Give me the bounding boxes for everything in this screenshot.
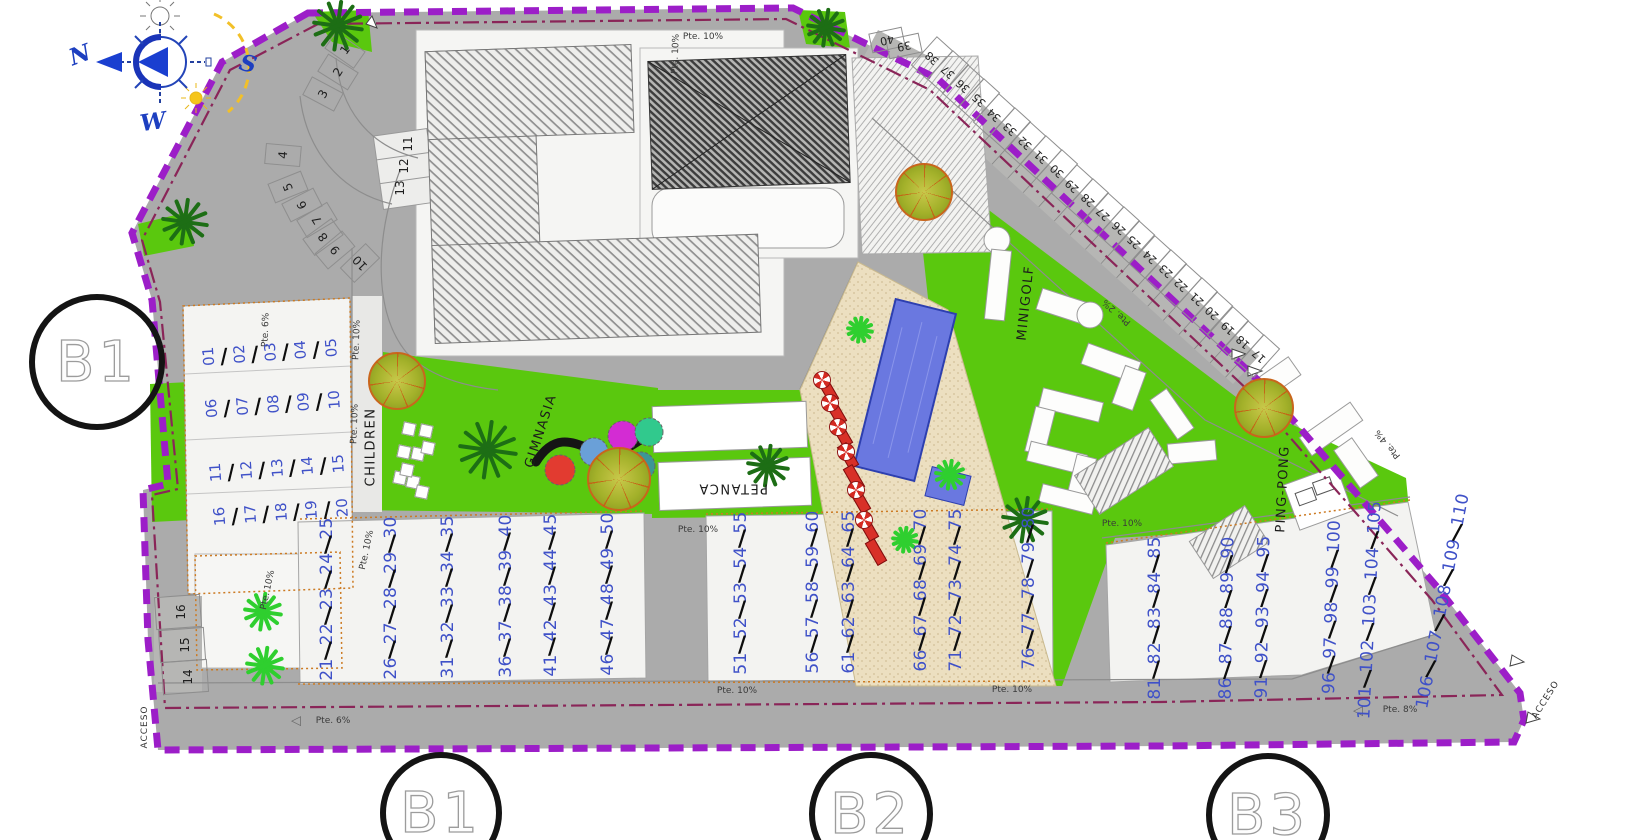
unit-divider: /: [443, 574, 456, 584]
unit-group-71-75: 71/72/73/74/75: [946, 508, 966, 671]
parking-number: 15: [178, 637, 192, 652]
unit-divider: /: [501, 609, 514, 619]
slope-arrow-icon: ◁: [291, 714, 301, 729]
unit-number: 19: [302, 500, 321, 520]
unit-number: 18: [271, 502, 290, 522]
unit-number: 08: [263, 394, 282, 414]
unit-divider: /: [844, 605, 857, 615]
unit-divider: /: [1220, 666, 1233, 676]
palm-tree-icon: [934, 459, 966, 491]
unit-divider: /: [284, 392, 293, 416]
unit-divider: /: [1258, 594, 1271, 604]
unit-divider: /: [736, 641, 749, 651]
unit-divider: /: [1150, 560, 1163, 570]
block-circle-b1: B1: [29, 294, 165, 430]
unit-divider: /: [1328, 555, 1341, 565]
palm-tree-icon: [245, 646, 285, 686]
unit-divider: /: [844, 569, 857, 579]
area-label-children: CHILDREN: [364, 408, 379, 487]
unit-divider: /: [322, 498, 331, 522]
unit-divider: /: [288, 456, 297, 480]
palm-tree-icon: [458, 420, 518, 480]
unit-divider: /: [1365, 582, 1379, 593]
unit-divider: /: [844, 534, 857, 544]
area-label-petanca: PETANCA: [698, 481, 768, 496]
unit-divider: /: [250, 342, 259, 366]
unit-group-46-50: 46/47/48/49/50: [598, 512, 618, 675]
unit-divider: /: [386, 575, 399, 585]
unit-divider: /: [916, 532, 929, 542]
unit-divider: /: [257, 458, 266, 482]
unit-number: 09: [294, 392, 313, 412]
unit-divider: /: [1450, 527, 1465, 539]
unit-group-41-45: 41/42/43/44/45: [541, 513, 561, 676]
unit-group-76-80: 76/77/78/79/80: [1019, 506, 1039, 669]
slope-label: Pte. 10%: [678, 525, 718, 535]
unit-divider: /: [501, 644, 514, 654]
unit-number: 14: [298, 456, 317, 476]
parking-number: 12: [397, 158, 411, 173]
unit-number: 07: [233, 396, 252, 416]
unit-number: 12: [237, 460, 256, 480]
play-element-icon: [420, 440, 435, 455]
unit-divider: /: [603, 571, 616, 581]
unit-divider: /: [808, 640, 821, 650]
unit-divider: /: [603, 536, 616, 546]
tree-icon: [1234, 378, 1294, 438]
unit-divider: /: [844, 640, 857, 650]
unit-strip-b1: [298, 513, 646, 684]
unit-divider: /: [322, 576, 335, 586]
parking-number: 13: [393, 180, 407, 195]
unit-divider: /: [253, 394, 262, 418]
dark-roof-building: [648, 55, 850, 190]
unit-divider: /: [951, 532, 964, 542]
unit-divider: /: [443, 610, 456, 620]
unit-divider: /: [219, 344, 228, 368]
unit-number: 01: [199, 346, 218, 366]
unit-divider: /: [501, 538, 514, 548]
unit-divider: /: [292, 500, 301, 524]
unit-divider: /: [443, 645, 456, 655]
unit-number: 11: [206, 462, 225, 482]
unit-divider: /: [1363, 628, 1377, 639]
play-element-icon: [396, 444, 411, 459]
unit-number: 16: [210, 506, 229, 526]
unit-divider: /: [222, 396, 231, 420]
unit-divider: /: [386, 611, 399, 621]
unit-group-56-60: 56/57/58/59/60: [803, 510, 823, 673]
unit-group-86-90: 86/87/88/89/90: [1216, 536, 1239, 699]
palm-tree-icon: [312, 0, 364, 52]
unit-divider: /: [1258, 559, 1271, 569]
block-circle-label: B3: [1227, 783, 1309, 840]
unit-divider: /: [951, 638, 964, 648]
unit-divider: /: [736, 535, 749, 545]
play-element-icon: [418, 423, 433, 438]
site-plan: CHILDRENGIMNASIAPETANCAMINIGOLFPING-PONG…: [0, 0, 1638, 840]
unit-group-81-85: 81/82/83/84/85: [1145, 536, 1165, 699]
unit-divider: /: [1150, 595, 1163, 605]
palm-tree-icon: [161, 198, 209, 246]
unit-divider: /: [1326, 625, 1339, 635]
unit-divider: /: [1150, 666, 1163, 676]
unit-divider: /: [1257, 630, 1270, 640]
access-label: ACCESO: [140, 705, 150, 748]
slope-label: Pte. 10%: [717, 686, 757, 696]
play-element-icon: [401, 421, 416, 436]
unit-number: 20: [333, 498, 352, 518]
slope-label: Pte. 10%: [349, 404, 360, 445]
unit-number: 03: [260, 342, 279, 362]
unit-divider: /: [546, 643, 559, 653]
unit-group-66-70: 66/67/68/69/70: [911, 508, 931, 671]
unit-number: 06: [202, 398, 221, 418]
unit-divider: /: [386, 540, 399, 550]
play-element-icon: [399, 462, 414, 477]
unit-number: 04: [291, 340, 310, 360]
unit-divider: /: [808, 569, 821, 579]
unit-group-21-25: 21/22/23/24/25: [317, 517, 337, 680]
unit-divider: /: [916, 567, 929, 577]
unit-number: 17: [241, 504, 260, 524]
slope-label: Pte. 10%: [670, 34, 681, 75]
unit-divider: /: [281, 340, 290, 364]
unit-number: 15: [329, 454, 348, 474]
unit-divider: /: [1024, 601, 1037, 611]
unit-divider: /: [311, 338, 320, 362]
unit-divider: /: [1327, 590, 1340, 600]
compass-letter-w: W: [138, 107, 167, 137]
unit-divider: /: [951, 567, 964, 577]
parking-number: 4: [276, 151, 291, 160]
unit-divider: /: [951, 603, 964, 613]
unit-divider: /: [1423, 663, 1438, 675]
unit-number: 10: [325, 390, 344, 410]
unit-group-61-65: 61/62/63/64/65: [839, 510, 859, 673]
block-circle-label: B1: [400, 781, 482, 840]
unit-divider: /: [314, 390, 323, 414]
block-circle-label: B1: [56, 330, 138, 395]
unit-group-26-30: 26/27/28/29/30: [381, 516, 401, 679]
unit-divider: /: [1432, 618, 1447, 630]
unit-divider: /: [230, 504, 239, 528]
unit-divider: /: [1368, 535, 1382, 546]
unit-divider: /: [226, 460, 235, 484]
unit-divider: /: [1024, 530, 1037, 540]
unit-divider: /: [1150, 631, 1163, 641]
unit-divider: /: [443, 539, 456, 549]
unit-divider: /: [1222, 560, 1235, 570]
unit-divider: /: [736, 570, 749, 580]
unit-group-36-40: 36/37/38/39/40: [496, 514, 516, 677]
unit-divider: /: [261, 502, 270, 526]
block-circle-label: B2: [830, 782, 912, 840]
unit-divider: /: [386, 646, 399, 656]
unit-divider: /: [808, 534, 821, 544]
tree-icon: [587, 447, 651, 511]
unit-group-51-55: 51/52/53/54/55: [731, 511, 751, 674]
unit-divider: /: [1024, 636, 1037, 646]
unit-divider: /: [1256, 665, 1269, 675]
unit-divider: /: [546, 608, 559, 618]
unit-divider: /: [322, 612, 335, 622]
palm-tree-icon: [806, 8, 846, 48]
unit-divider: /: [603, 607, 616, 617]
unit-divider: /: [318, 454, 327, 478]
unit-number: 13: [267, 458, 286, 478]
unit-divider: /: [1361, 674, 1375, 685]
palm-tree-icon: [846, 316, 874, 344]
unit-divider: /: [1441, 572, 1456, 584]
unit-divider: /: [322, 647, 335, 657]
unit-divider: /: [546, 537, 559, 547]
unit-divider: /: [916, 638, 929, 648]
slope-label: Pte. 10%: [1102, 519, 1142, 529]
unit-divider: /: [603, 642, 616, 652]
unit-divider: /: [1324, 660, 1337, 670]
unit-divider: /: [916, 603, 929, 613]
unit-divider: /: [1222, 595, 1235, 605]
gym-station: [545, 455, 575, 485]
tree-icon: [895, 163, 953, 221]
unit-divider: /: [1221, 631, 1234, 641]
unit-divider: /: [808, 605, 821, 615]
play-element-icon: [414, 484, 429, 499]
slope-label: Pte. 10%: [992, 685, 1032, 695]
parking-number: 14: [181, 669, 195, 684]
unit-group-91-95: 91/92/93/94/95: [1252, 535, 1275, 698]
unit-divider: /: [736, 606, 749, 616]
unit-number: 02: [230, 344, 249, 364]
unit-divider: /: [322, 541, 335, 551]
unit-divider: /: [546, 572, 559, 582]
unit-divider: /: [501, 573, 514, 583]
slope-label: Pte. 10%: [351, 320, 362, 361]
gym-station: [635, 418, 663, 446]
unit-group-31-35: 31/32/33/34/35: [438, 515, 458, 678]
unit-divider: /: [1024, 565, 1037, 575]
parking-number: 16: [174, 604, 188, 619]
slope-label: Pte. 10%: [683, 32, 723, 42]
parking-number: 11: [401, 136, 415, 151]
north-arrow-icon: [96, 52, 122, 72]
slope-label: Pte. 6%: [316, 716, 351, 726]
tree-icon: [368, 352, 426, 410]
unit-number: 05: [322, 338, 341, 358]
